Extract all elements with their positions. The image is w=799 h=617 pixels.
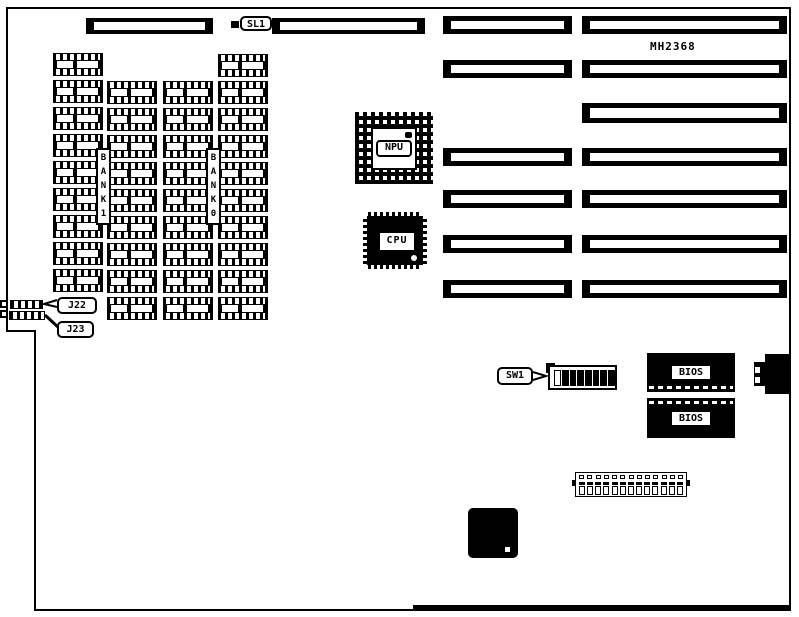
cpu-pin1-dot — [411, 255, 417, 261]
dip-socket — [107, 243, 157, 266]
power-pin — [579, 486, 585, 495]
dip-socket — [218, 54, 268, 77]
expansion-slot — [443, 60, 572, 78]
power-pin — [677, 482, 683, 485]
dip-socket — [218, 108, 268, 131]
npu-socket: NPU — [355, 112, 433, 184]
cpu-body: CPU — [367, 216, 423, 265]
power-pin — [661, 482, 667, 485]
dip-socket — [53, 80, 103, 103]
sw1-position-on — [562, 370, 569, 386]
power-pin — [587, 475, 592, 479]
power-pin — [612, 486, 618, 495]
dip-socket — [107, 297, 157, 320]
power-pin — [637, 475, 642, 479]
expansion-slot — [582, 16, 787, 34]
power-pin — [636, 486, 642, 495]
power-pin — [579, 482, 585, 485]
dip-socket — [107, 108, 157, 131]
j22-pin-header — [10, 300, 43, 309]
dip-socket — [218, 216, 268, 239]
dip-socket — [218, 81, 268, 104]
expansion-slot — [443, 16, 572, 34]
npu-label: NPU — [376, 140, 412, 157]
power-pin — [620, 486, 626, 495]
power-pin — [596, 475, 601, 479]
memory-column-4 — [218, 54, 268, 320]
power-connector — [575, 472, 687, 497]
j23-pin-header — [9, 311, 45, 320]
power-pin — [620, 482, 626, 485]
sw1-position-on — [577, 370, 584, 386]
power-pin — [652, 486, 658, 495]
expansion-slot — [443, 235, 572, 253]
dip-socket — [53, 107, 103, 130]
expansion-slot — [443, 190, 572, 208]
power-connector-row-bottom — [579, 486, 683, 495]
power-pin — [678, 475, 683, 479]
sw1-position-off — [554, 370, 561, 386]
power-pin — [579, 475, 584, 479]
power-connector-notch-left — [572, 480, 575, 486]
dip-socket — [107, 162, 157, 185]
power-pin — [612, 475, 617, 479]
j23-edge-pad — [0, 310, 8, 318]
power-pin — [669, 486, 675, 495]
dip-socket — [107, 216, 157, 239]
power-pin — [644, 482, 650, 485]
expansion-slot — [582, 60, 787, 78]
sw1-label: SW1 — [497, 367, 533, 385]
dip-socket — [53, 53, 103, 76]
bios-top-label: BIOS — [672, 366, 710, 379]
dip-socket — [163, 243, 213, 266]
expansion-slot — [443, 148, 572, 166]
power-pin — [628, 482, 634, 485]
bios-top-dashed-line — [649, 386, 733, 389]
sw1-dip-switch — [548, 365, 617, 390]
bios-bottom-dashed-line — [649, 401, 733, 404]
dip-socket — [218, 270, 268, 293]
keyboard-connector-pin — [755, 377, 760, 383]
board-model-text: MH2368 — [650, 40, 696, 53]
power-pin — [645, 475, 650, 479]
power-pin — [604, 475, 609, 479]
dip-socket — [218, 189, 268, 212]
j23-label: J23 — [57, 321, 94, 338]
power-pin — [595, 482, 601, 485]
motherboard-diagram: SL1 MH2368 B A N K 1 B A N K 0 J22 J23 N… — [0, 0, 799, 617]
npu-socket-cavity: NPU — [371, 127, 417, 170]
power-pin — [595, 486, 601, 495]
dip-socket — [218, 135, 268, 158]
power-pin — [636, 482, 642, 485]
sw1-position-on — [593, 370, 600, 386]
dip-socket — [163, 270, 213, 293]
qfp-chip — [468, 508, 518, 558]
power-pin — [662, 475, 667, 479]
dip-socket — [107, 189, 157, 212]
keyboard-connector-pin — [755, 367, 760, 373]
power-pin — [652, 482, 658, 485]
j22-pointer-line — [44, 300, 57, 307]
sl1-label: SL1 — [240, 16, 272, 31]
power-pin — [603, 482, 609, 485]
power-connector-row-top — [579, 475, 683, 479]
bios-chip-top: BIOS — [647, 353, 735, 392]
power-connector-notch-right — [687, 480, 690, 486]
sl1-pin-square — [231, 21, 239, 28]
dip-socket — [163, 108, 213, 131]
card-slot-sl1 — [272, 18, 425, 34]
power-pin — [661, 486, 667, 495]
card-slot-top-left — [86, 18, 213, 34]
power-pin — [670, 475, 675, 479]
memory-column-2 — [107, 81, 157, 320]
dip-socket — [107, 270, 157, 293]
dip-socket — [107, 81, 157, 104]
power-pin — [653, 475, 658, 479]
power-pin — [587, 486, 593, 495]
power-connector-row-middle — [579, 482, 683, 485]
power-pin — [628, 486, 634, 495]
dip-socket — [163, 297, 213, 320]
power-pin — [629, 475, 634, 479]
qfp-pin1-dot — [505, 547, 510, 552]
expansion-slot — [443, 280, 572, 298]
bios-chip-bottom: BIOS — [647, 398, 735, 438]
npu-pin1-dot — [405, 132, 412, 138]
expansion-slot — [582, 148, 787, 166]
cpu-chip: CPU — [363, 212, 427, 269]
power-pin — [620, 475, 625, 479]
power-pin — [612, 482, 618, 485]
dip-socket — [107, 135, 157, 158]
dip-socket — [163, 81, 213, 104]
expansion-slot — [582, 280, 787, 298]
sw1-pointer-line — [533, 372, 546, 380]
bank1-label: B A N K 1 — [96, 148, 111, 225]
j22-edge-pad — [0, 300, 8, 308]
power-pin — [644, 486, 650, 495]
power-pin — [603, 486, 609, 495]
power-pin — [587, 482, 593, 485]
expansion-slot — [582, 103, 787, 123]
dip-socket — [218, 243, 268, 266]
power-pin — [669, 482, 675, 485]
sw1-position-on — [600, 370, 607, 386]
cpu-label: CPU — [380, 233, 414, 250]
keyboard-connector — [765, 354, 790, 394]
sw1-position-on — [585, 370, 592, 386]
power-pin — [677, 486, 683, 495]
board-bottom-edge-thick — [413, 605, 790, 611]
dip-socket — [53, 269, 103, 292]
bios-bottom-label: BIOS — [672, 412, 710, 425]
bank0-label: B A N K 0 — [206, 148, 221, 225]
dip-socket — [218, 162, 268, 185]
sw1-position-on — [570, 370, 577, 386]
dip-socket — [53, 242, 103, 265]
sw1-position-on — [608, 370, 615, 386]
expansion-slot — [582, 190, 787, 208]
dip-socket — [218, 297, 268, 320]
expansion-slot — [582, 235, 787, 253]
j22-label: J22 — [57, 297, 97, 314]
